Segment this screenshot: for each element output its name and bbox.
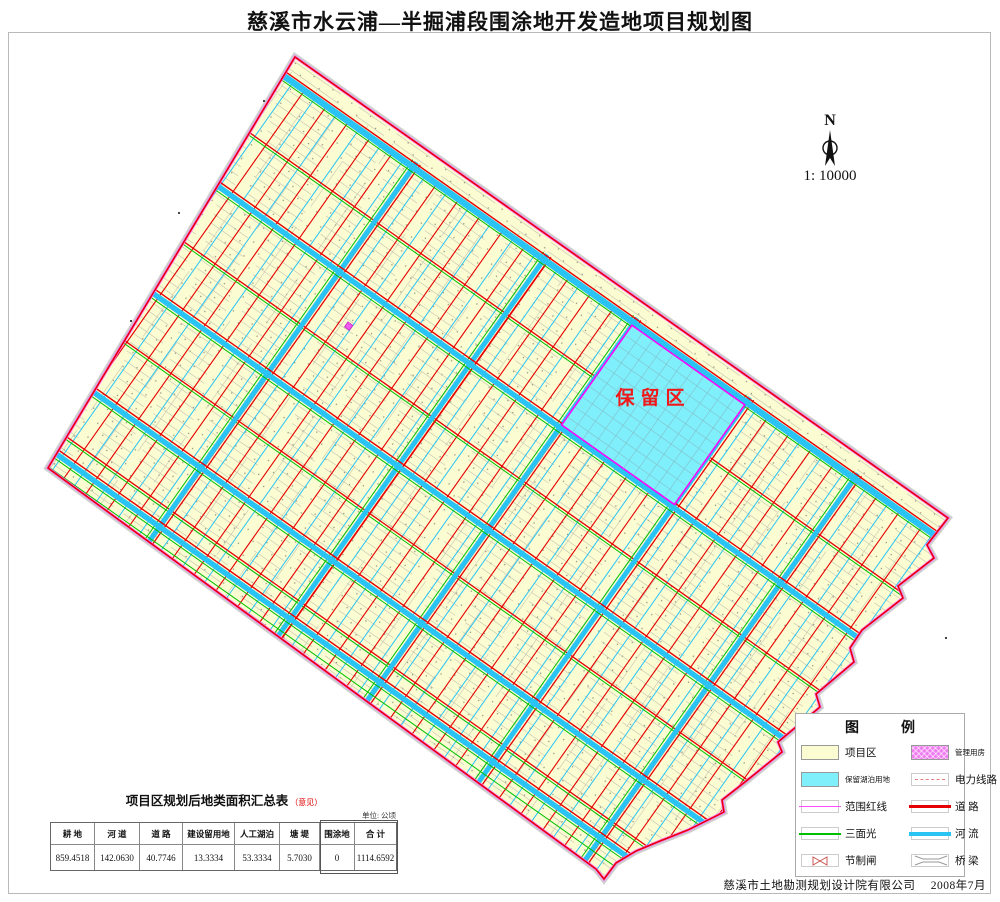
legend-box: 图 例 项目区 管理用房 保留湖泊用地 电力线路 范围红线 道 路 三面光 河 …: [795, 713, 965, 877]
col-header-pond-embankment: 塘 堤: [280, 823, 320, 845]
value-road: 40.7746: [140, 845, 183, 870]
col-header-reclaimed-land: 围涂地: [320, 823, 355, 845]
bridge-icon: [912, 854, 948, 867]
legend-swatch-control-gate: [801, 854, 839, 867]
col-header-construction-reserve: 建设留用地: [183, 823, 235, 845]
legend-label-river: 河 流: [955, 826, 997, 841]
area-summary-table: 项目区规划后地类面积汇总表（意见） 单位: 公顷 耕 地 河 道 道 路 建设留…: [50, 790, 398, 871]
legend-label-lined-channel: 三面光: [845, 826, 909, 841]
compass-icon: [815, 130, 845, 170]
summary-table-title: 项目区规划后地类面积汇总表（意见）: [50, 790, 398, 809]
legend-swatch-project-area: [801, 745, 839, 760]
publisher-credit: 慈溪市土地勘测规划设计院有限公司 2008年7月: [723, 877, 986, 893]
col-header-artificial-lake: 人工湖泊: [235, 823, 280, 845]
legend-label-road: 道 路: [955, 799, 997, 814]
value-river-channel: 142.0630: [95, 845, 140, 870]
north-indicator: N: [798, 112, 862, 170]
legend-swatch-management-building: [911, 745, 949, 760]
value-total: 1114.6592: [355, 845, 396, 870]
summary-table-title-text: 项目区规划后地类面积汇总表: [126, 794, 289, 808]
legend-label-boundary-red-line: 范围红线: [845, 799, 909, 814]
north-label: N: [798, 112, 862, 130]
col-header-road: 道 路: [140, 823, 183, 845]
legend-title: 图 例: [801, 717, 959, 737]
reserved-area-label: 保留区: [598, 383, 708, 410]
legend-swatch-bridge: [911, 854, 949, 867]
legend-label-power-line: 电力线路: [955, 772, 997, 787]
summary-table-title-note: （意见）: [290, 798, 322, 807]
map-scale: 1: 10000: [786, 168, 874, 185]
control-gate-icon: [810, 856, 830, 866]
legend-swatch-road: [911, 800, 949, 813]
legend-grid: 项目区 管理用房 保留湖泊用地 电力线路 范围红线 道 路 三面光 河 流 节制…: [801, 739, 959, 874]
legend-label-project-area: 项目区: [845, 745, 909, 760]
value-pond-embankment: 5.7030: [280, 845, 320, 870]
legend-swatch-boundary-red-line: [801, 800, 839, 813]
summary-table-grid: 耕 地 河 道 道 路 建设留用地 人工湖泊 塘 堤 围涂地 合 计 859.4…: [50, 822, 397, 871]
legend-label-management-building: 管理用房: [955, 747, 997, 758]
value-reclaimed-land: 0: [320, 845, 355, 870]
legend-swatch-power-line: [911, 773, 949, 786]
legend-label-bridge: 桥 梁: [955, 853, 997, 868]
legend-swatch-reserved-lake-land: [801, 772, 839, 787]
legend-swatch-lined-channel: [801, 827, 839, 840]
value-cultivated-land: 859.4518: [51, 845, 95, 870]
legend-swatch-river: [911, 827, 949, 840]
value-construction-reserve: 13.3334: [183, 845, 235, 870]
legend-label-reserved-lake-land: 保留湖泊用地: [845, 774, 909, 785]
col-header-river-channel: 河 道: [95, 823, 140, 845]
value-artificial-lake: 53.3334: [235, 845, 280, 870]
col-header-cultivated-land: 耕 地: [51, 823, 95, 845]
col-header-total: 合 计: [355, 823, 396, 845]
summary-table-unit: 单位: 公顷: [50, 810, 396, 821]
legend-label-control-gate: 节制闸: [845, 853, 909, 868]
